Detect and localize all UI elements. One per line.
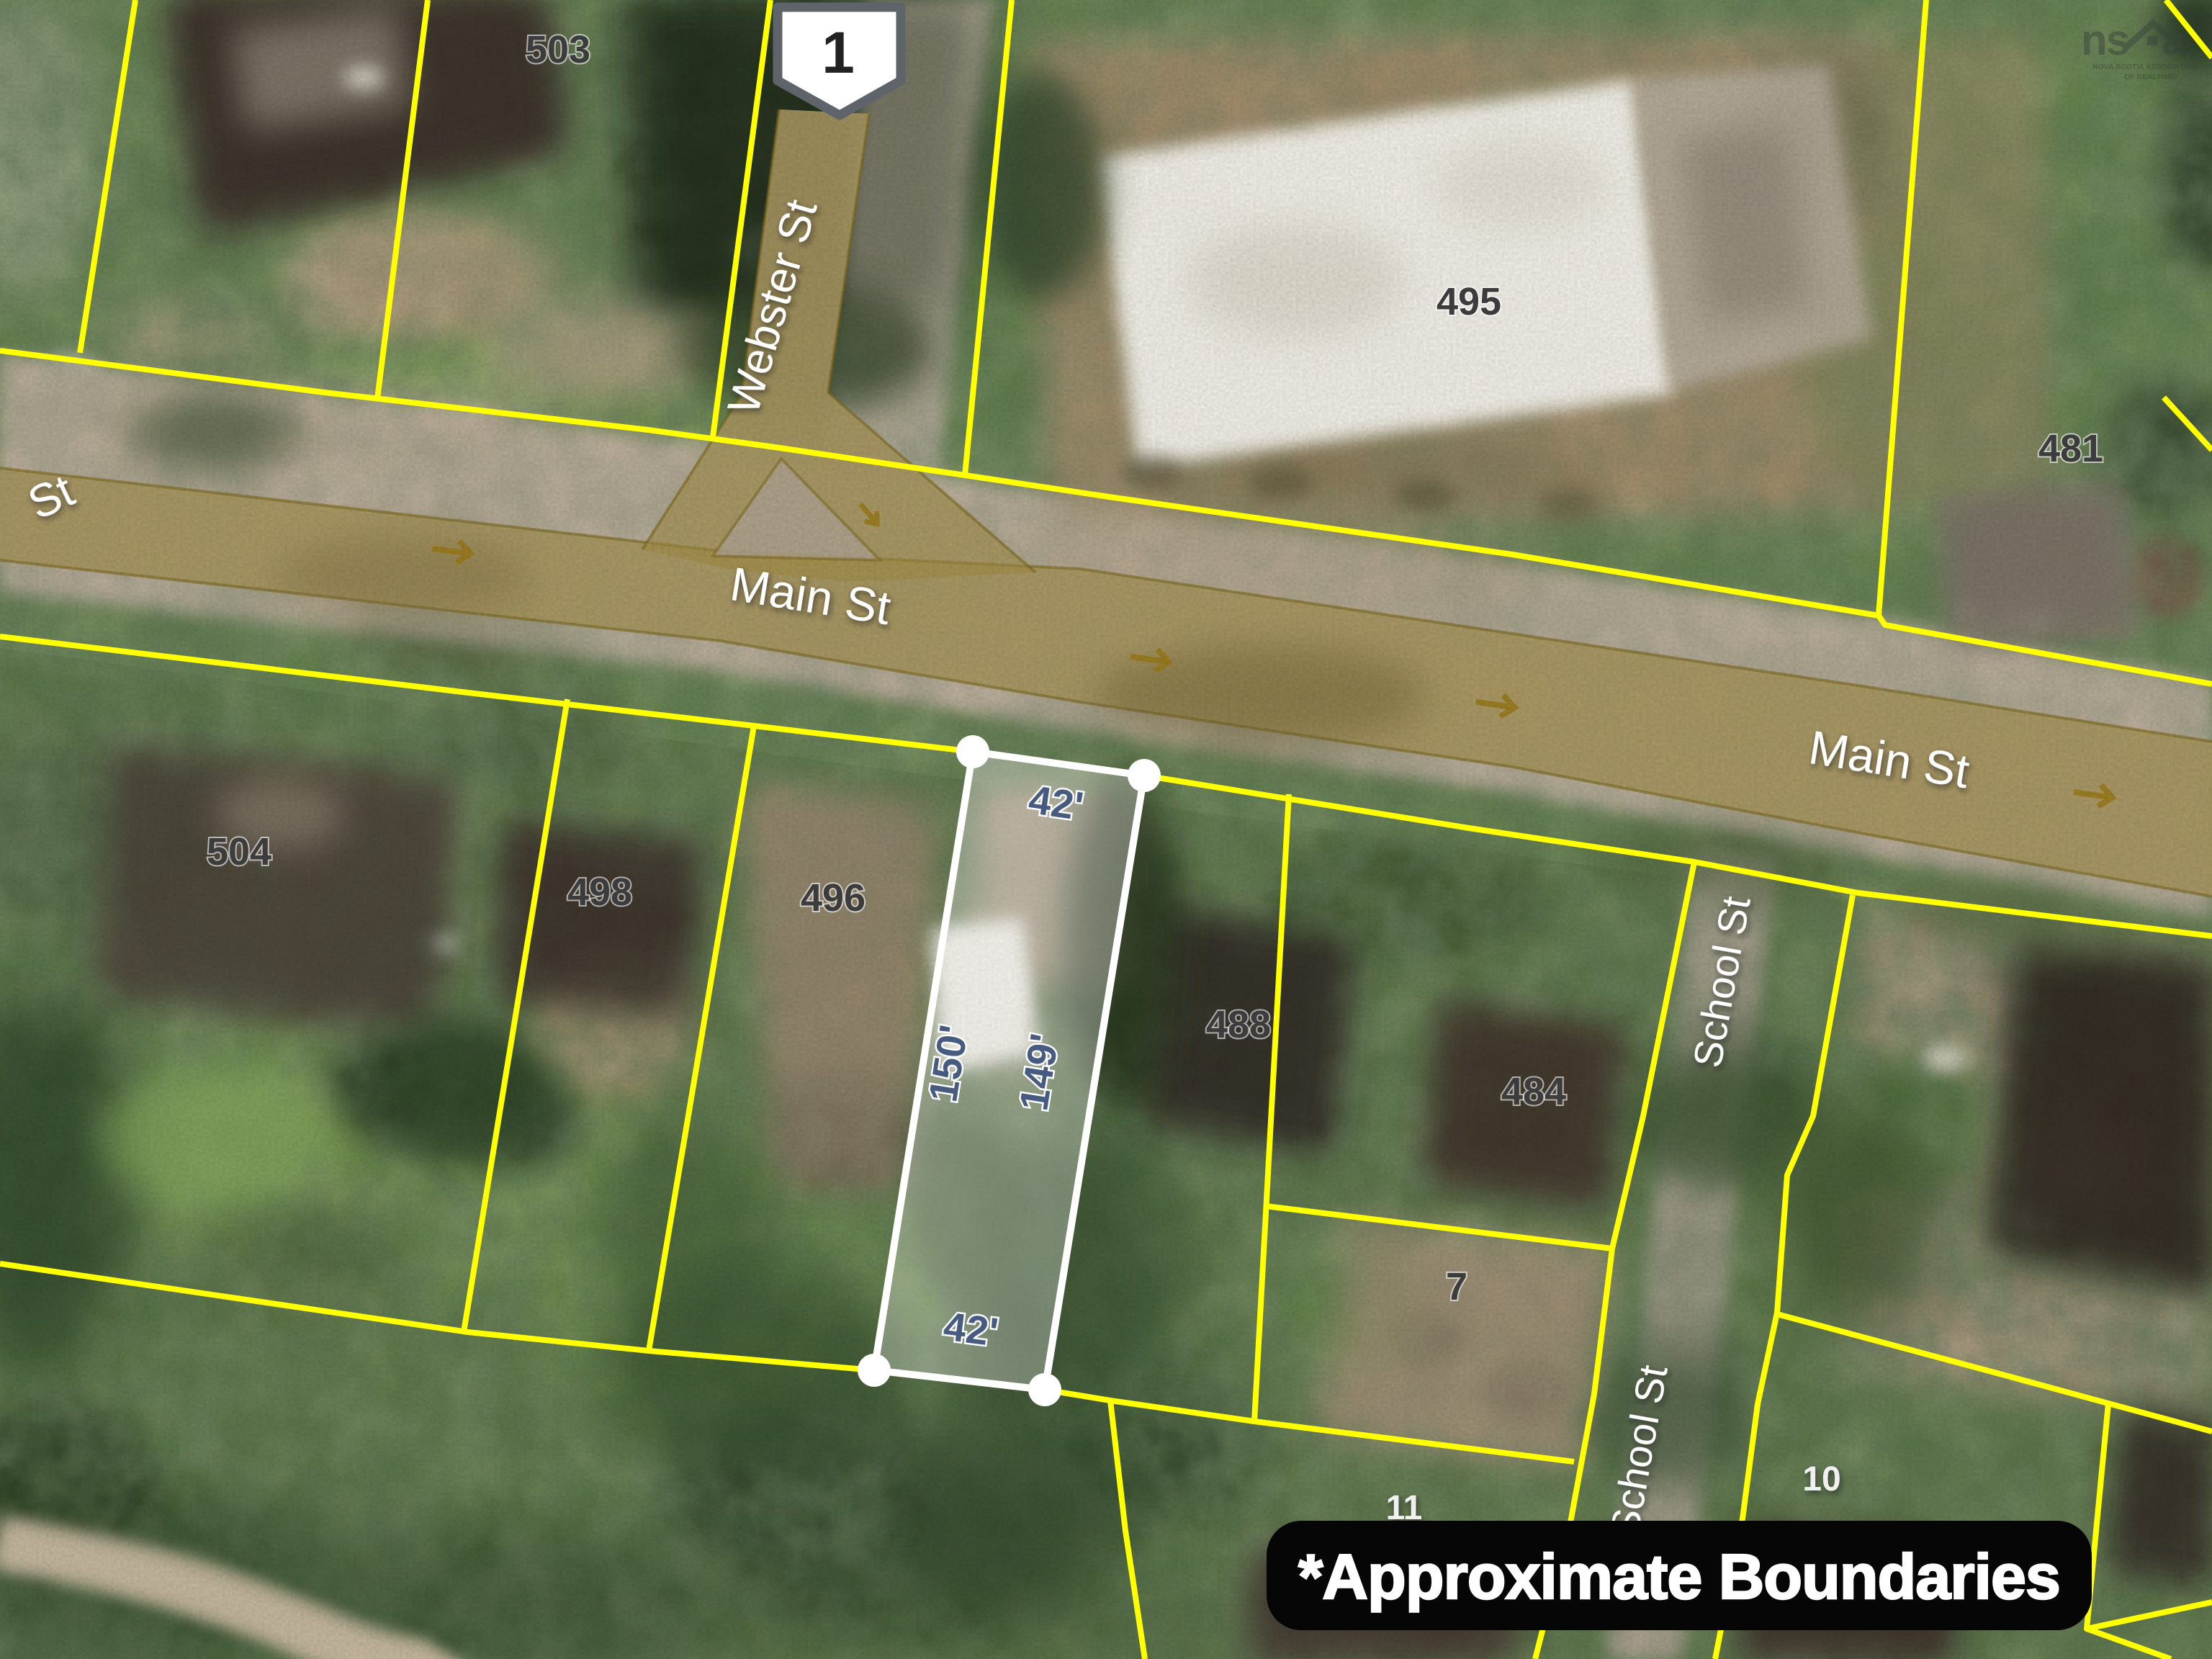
svg-text:OF REALTORS: OF REALTORS: [2124, 73, 2177, 81]
svg-text:503: 503: [526, 28, 590, 71]
svg-text:a: a: [2162, 16, 2186, 64]
svg-text:*Approximate Boundaries: *Approximate Boundaries: [1298, 1541, 2060, 1612]
svg-text:NOVA SCOTIA ASSOCIATION: NOVA SCOTIA ASSOCIATION: [2092, 63, 2198, 71]
svg-text:42': 42': [1026, 776, 1087, 829]
svg-text:481: 481: [2038, 427, 2103, 470]
svg-text:498: 498: [567, 871, 632, 914]
svg-text:495: 495: [1437, 280, 1501, 323]
svg-text:7: 7: [1446, 1265, 1467, 1308]
svg-text:484: 484: [1501, 1070, 1566, 1113]
svg-text:488: 488: [1206, 1003, 1271, 1046]
svg-text:10: 10: [1802, 1460, 1840, 1498]
svg-text:504: 504: [207, 830, 271, 873]
svg-text:496: 496: [801, 876, 866, 920]
svg-text:ns: ns: [2081, 16, 2128, 64]
svg-text:42': 42': [941, 1303, 1001, 1355]
svg-text:1: 1: [822, 20, 855, 86]
